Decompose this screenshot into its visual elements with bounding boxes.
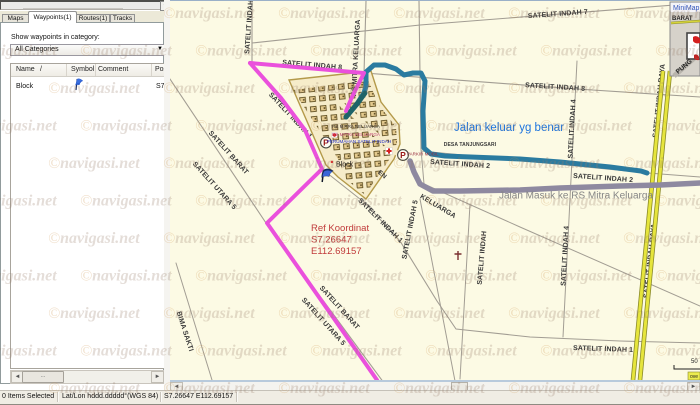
svg-text:Jalan keluar yg benar: Jalan keluar yg benar	[454, 122, 564, 134]
svg-text:S7.26647: S7.26647	[311, 235, 352, 246]
svg-text:50: 50	[691, 359, 698, 365]
svg-text:SATELIT UTARA 5: SATELIT UTARA 5	[191, 161, 237, 212]
svg-text:SATELIT INDAH 1: SATELIT INDAH 1	[356, 197, 403, 244]
svg-text:MiniMap: MiniMap	[673, 5, 700, 12]
svg-text:PARKIR MOBIL: PARKIR MOBIL	[407, 152, 439, 157]
svg-text:RS MITRA KELUARGA: RS MITRA KELUARGA	[332, 132, 381, 137]
svg-text:RS MITRA KELUARGA: RS MITRA KELUARGA	[332, 124, 381, 129]
svg-text:SATELIT INDAH 7: SATELIT INDAH 7	[528, 9, 588, 20]
svg-text:E112.69157: E112.69157	[311, 246, 362, 257]
svg-text:SATELIT INDAH: SATELIT INDAH	[244, 1, 255, 54]
svg-text:SATELIT INDAH 5: SATELIT INDAH 5	[401, 200, 419, 260]
svg-text:Ref Koordinat: Ref Koordinat	[311, 223, 369, 234]
svg-text:Jalan Masuk ke RS Mitra Keluar: Jalan Masuk ke RS Mitra Keluarga	[499, 191, 653, 202]
svg-text:PERUMAHAN SATELIT INDAH: PERUMAHAN SATELIT INDAH	[327, 139, 391, 144]
svg-text:BIMA SAKTI: BIMA SAKTI	[175, 311, 195, 353]
svg-text:P: P	[400, 150, 406, 160]
svg-text:SATELIT.INDAH 4: SATELIT.INDAH 4	[567, 99, 577, 159]
svg-text:SATELIT BARAT: SATELIT BARAT	[207, 130, 250, 177]
svg-text:SATELIT INDAH 1: SATELIT INDAH 1	[573, 345, 633, 354]
svg-text:SATELIT INDAH: SATELIT INDAH	[477, 231, 489, 285]
svg-text:SATELIT INDAH 2: SATELIT INDAH 2	[573, 173, 633, 184]
svg-text:SATELIT INDAH 4: SATELIT INDAH 4	[560, 226, 570, 286]
svg-text:KELUARGA: KELUARGA	[419, 193, 457, 220]
svg-text:DESA TANJUNGSARI: DESA TANJUNGSARI	[444, 142, 497, 148]
svg-text:Block: Block	[336, 162, 354, 169]
svg-text:SATELIT INDAH 2: SATELIT INDAH 2	[430, 159, 490, 170]
